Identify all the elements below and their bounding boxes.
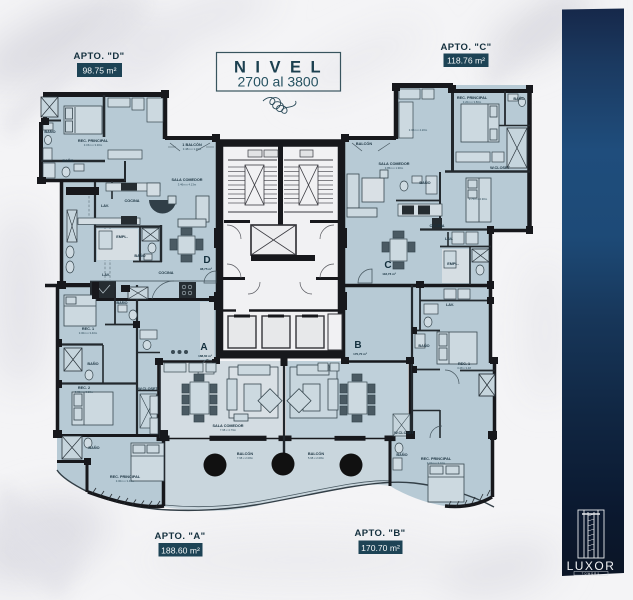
svg-text:188,60 m²: 188,60 m²	[198, 354, 212, 358]
svg-text:118.76 m²: 118.76 m²	[447, 56, 485, 66]
svg-text:98.75 m²: 98.75 m²	[83, 66, 117, 76]
svg-text:LAV.: LAV.	[446, 303, 454, 307]
svg-text:7.98 x 4.79m: 7.98 x 4.79m	[220, 428, 237, 432]
svg-text:W.CLOSET: W.CLOSET	[138, 387, 159, 391]
svg-text:BAÑO: BAÑO	[419, 180, 430, 185]
svg-text:LUXOR: LUXOR	[567, 559, 616, 573]
svg-text:LAV.: LAV.	[102, 273, 110, 277]
svg-text:D: D	[203, 255, 210, 266]
svg-text:2700 al 3800: 2700 al 3800	[238, 74, 319, 90]
svg-text:COCINA: COCINA	[430, 224, 445, 228]
svg-text:7.98 x 2.08m: 7.98 x 2.08m	[237, 456, 254, 460]
svg-text:5.98 x 2.08m: 5.98 x 2.08m	[308, 456, 325, 460]
svg-text:TOWERS: TOWERS	[582, 571, 601, 575]
svg-text:W.CLOSET: W.CLOSET	[490, 166, 511, 170]
svg-text:COCINA: COCINA	[159, 271, 174, 275]
svg-text:170,70 m²: 170,70 m²	[353, 352, 367, 356]
svg-text:3.02m x 3.10m: 3.02m x 3.10m	[427, 461, 446, 465]
svg-text:EMPL.: EMPL.	[447, 262, 459, 266]
svg-text:3.15m x 3.30m: 3.15m x 3.30m	[84, 143, 103, 147]
svg-text:LAV.: LAV.	[445, 237, 453, 241]
svg-text:APTO. "A": APTO. "A"	[155, 531, 206, 542]
svg-text:3.48m x 1.20m: 3.48m x 1.20m	[183, 147, 202, 151]
svg-text:BAÑO: BAÑO	[513, 96, 524, 101]
svg-text:B: B	[354, 340, 361, 351]
svg-text:98,75 m²: 98,75 m²	[200, 267, 212, 271]
svg-text:3.30m x 3.20m: 3.30m x 3.20m	[75, 390, 94, 394]
svg-text:BAÑO: BAÑO	[134, 253, 145, 258]
svg-text:COCINA: COCINA	[125, 199, 140, 203]
svg-text:A: A	[200, 342, 207, 353]
svg-text:LAV.: LAV.	[101, 204, 109, 208]
svg-text:BAÑO: BAÑO	[116, 300, 127, 305]
svg-text:APTO. "C": APTO. "C"	[441, 42, 492, 53]
svg-text:BAÑO: BAÑO	[87, 361, 98, 366]
svg-text:3.20m x 3.80m: 3.20m x 3.80m	[463, 100, 482, 104]
svg-text:3.85m x 1.90m: 3.85m x 1.90m	[385, 166, 404, 170]
svg-text:BAÑO: BAÑO	[418, 343, 429, 348]
svg-text:SALA COMEDOR: SALA COMEDOR	[171, 178, 202, 182]
svg-text:BALCÓN: BALCÓN	[356, 141, 372, 146]
svg-text:170.70 m²: 170.70 m²	[361, 543, 400, 553]
svg-text:188.60 m²: 188.60 m²	[161, 545, 200, 555]
svg-text:BAÑO: BAÑO	[44, 129, 55, 134]
svg-text:APTO. "B": APTO. "B"	[355, 528, 406, 539]
svg-text:W.CLOSET: W.CLOSET	[394, 431, 415, 435]
svg-text:C: C	[384, 260, 391, 271]
svg-text:3.75m x 2.90m: 3.75m x 2.90m	[469, 197, 488, 201]
svg-text:3.46m x 4.13m: 3.46m x 4.13m	[178, 183, 197, 187]
svg-text:118,76 m²: 118,76 m²	[382, 272, 396, 276]
svg-text:3.48 x 3.48: 3.48 x 3.48	[457, 366, 471, 370]
svg-text:APTO. "D": APTO. "D"	[74, 51, 125, 62]
svg-text:3.02m x 4.20m: 3.02m x 4.20m	[409, 128, 428, 132]
svg-text:EMPL.: EMPL.	[116, 235, 128, 239]
svg-text:3.00m x 3.40m: 3.00m x 3.40m	[116, 479, 135, 483]
svg-text:BAÑO: BAÑO	[396, 452, 407, 457]
svg-text:3.00m x 3.40m: 3.00m x 3.40m	[79, 331, 98, 335]
svg-text:BAÑO: BAÑO	[62, 158, 73, 163]
svg-text:BAÑO: BAÑO	[88, 445, 99, 450]
